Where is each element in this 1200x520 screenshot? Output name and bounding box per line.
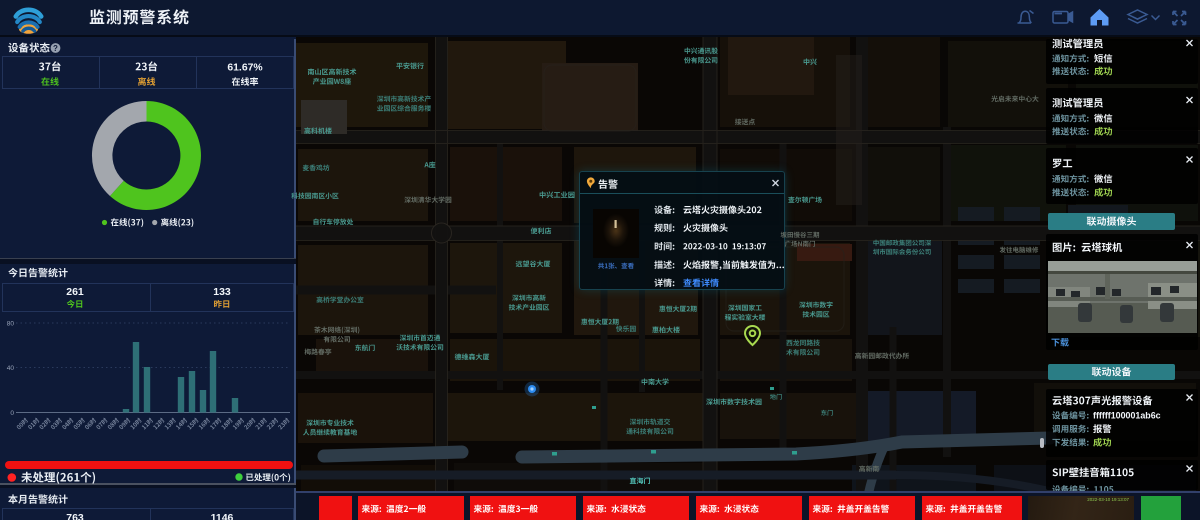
svg-text:0: 0	[10, 410, 14, 417]
svg-text:40: 40	[7, 365, 15, 372]
svg-text:80: 80	[7, 320, 15, 327]
